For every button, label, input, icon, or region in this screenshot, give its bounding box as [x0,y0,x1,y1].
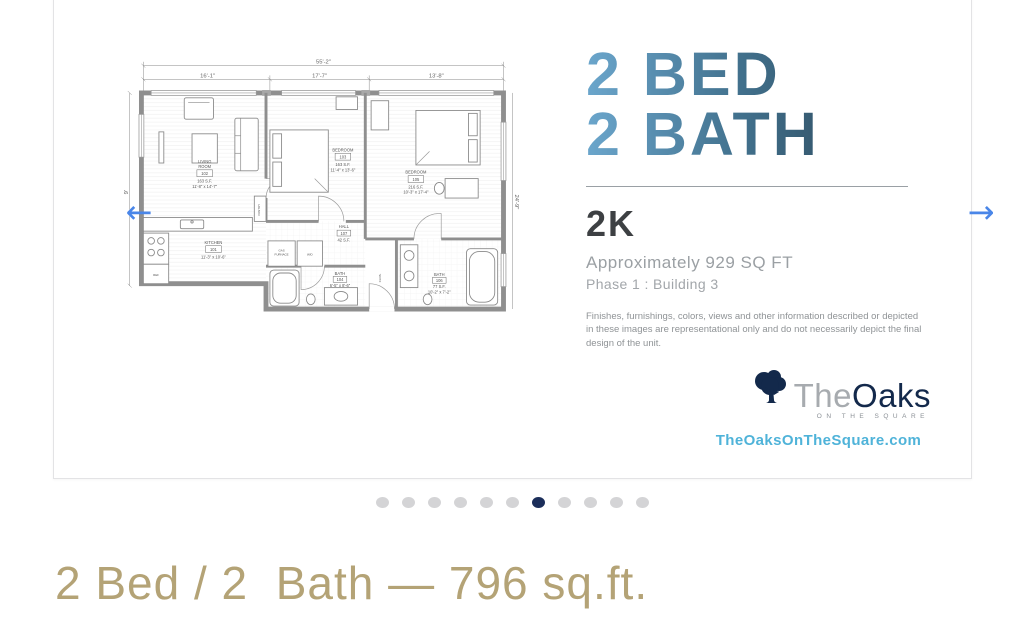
carousel-dot-9[interactable] [584,497,597,508]
divider-rule [586,186,908,187]
label-bath1: BATH [335,271,346,276]
label-ref: REF [153,273,159,277]
label-bedroom1-num: 103 [339,154,347,159]
label-bedroom2-sf: 216 S.F. [408,184,423,189]
label-furnace2: FURNACE [275,252,289,256]
label-living-dim: 11'-8" x 14'-7" [192,184,217,189]
label-hall-sf: 42 S.F. [338,237,351,242]
carousel-dot-4[interactable] [454,497,467,508]
logo-oaks: Oaks [852,377,931,414]
label-hall: HALL [339,224,350,229]
website-link[interactable]: TheOaksOnTheSquare.com [586,432,931,449]
logo-the: The [794,377,852,414]
carousel-slide-card: 55'-2" 16'-1" 17'-7" 13'-8" 9' 24'-9" [53,0,972,479]
logo-wordmark: TheOaks [794,381,931,411]
headline-bed: 2 BED [586,44,931,104]
label-wd: W/D [307,252,313,256]
slide-caption: 2 Bed / 2 Bath — 796 sq.ft. [55,556,648,610]
dim-right: 24'-9" [513,195,519,210]
label-bedroom2-num: 105 [412,177,420,182]
label-hall-num: 107 [340,231,348,236]
headline-bath: 2 BATH [586,104,931,164]
disclaimer-text: Finishes, furnishings, colors, views and… [586,310,926,350]
carousel-dot-7[interactable] [532,497,545,508]
dim-seg2: 17'-7" [312,73,327,79]
unit-info: 2 BED 2 BATH 2K Approximately 929 SQ FT … [586,44,931,350]
label-bath2-sf: 77 S.F. [433,284,446,289]
carousel-dots [0,494,1024,510]
logo-tagline: ON THE SQUARE [586,413,929,420]
carousel-prev-button[interactable]: ← [117,192,161,232]
oak-tree-icon [750,368,792,411]
label-pantry: PANTRY [257,204,261,216]
carousel-dot-8[interactable] [558,497,571,508]
label-bath2: BATH [434,272,445,277]
label-bedroom1-sf: 163 S.F. [335,162,350,167]
label-bedroom1: BEDROOM [332,147,354,152]
label-clos: CLOS. [378,273,382,282]
phase-text: Phase 1 : Building 3 [586,276,931,292]
dim-overall: 55'-2" [316,60,331,66]
label-bath1-dim: 6'-5" x 8'-6" [330,283,351,288]
label-living-num: 102 [201,171,209,176]
label-bath2-num: 106 [436,278,444,283]
carousel-next-button[interactable]: → [959,192,1003,232]
label-living-sf: 163 S.F. [197,178,212,183]
carousel-dot-6[interactable] [506,497,519,508]
label-bedroom2: BEDROOM [405,170,427,175]
dim-seg3: 13'-8" [429,73,444,79]
dim-seg1: 16'-1" [200,73,215,79]
page: 55'-2" 16'-1" 17'-7" 13'-8" 9' 24'-9" [0,0,1024,640]
carousel-dot-11[interactable] [636,497,649,508]
label-kitchen-num: 101 [210,247,218,252]
label-kitchen-dim: 11'-3" x 10'-6" [201,254,226,259]
label-bedroom1-dim: 11'-4" x 13'-6" [331,167,356,172]
area-text: Approximately 929 SQ FT [586,253,931,273]
logo-block: TheOaks ON THE SQUARE TheOaksOnTheSquare… [586,368,931,449]
label-bath1-num: 104 [337,277,345,282]
label-living-2: ROOM [198,164,211,169]
label-kitchen: KITCHEN [204,240,222,245]
carousel-dot-5[interactable] [480,497,493,508]
carousel-dot-1[interactable] [376,497,389,508]
carousel-dot-2[interactable] [402,497,415,508]
carousel-dot-10[interactable] [610,497,623,508]
carousel-dot-3[interactable] [428,497,441,508]
label-bedroom2-dim: 10'-3" x 17'-4" [403,190,429,195]
floorplan-svg: 55'-2" 16'-1" 17'-7" 13'-8" 9' 24'-9" [120,54,522,346]
unit-code: 2K [586,203,931,245]
floorplan-image: 55'-2" 16'-1" 17'-7" 13'-8" 9' 24'-9" [120,54,522,346]
label-bath2-dim: 10'-2" x 7'-2" [428,289,451,294]
